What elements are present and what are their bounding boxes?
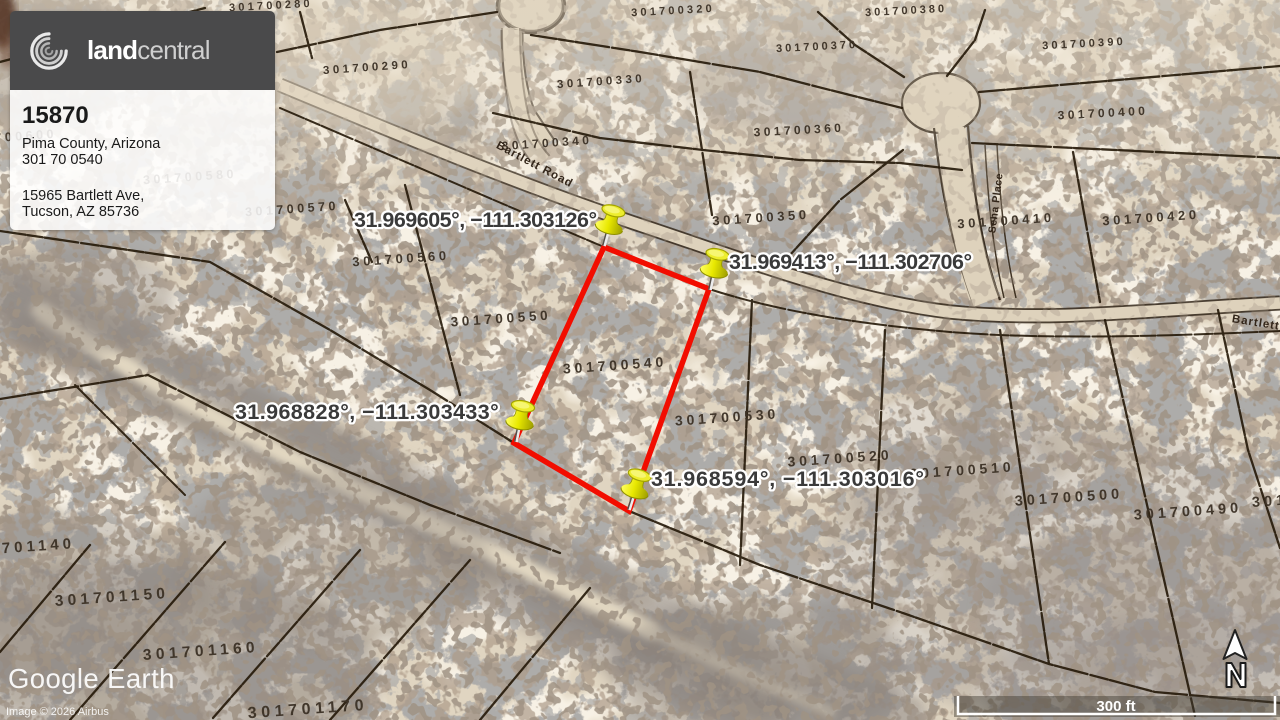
svg-text:Image © 2026 Airbus: Image © 2026 Airbus — [6, 706, 109, 718]
svg-text:300 ft: 300 ft — [1096, 698, 1135, 715]
svg-text:3017: 3017 — [1251, 492, 1280, 511]
svg-text:31.969605°, −111.303126°: 31.969605°, −111.303126° — [354, 208, 597, 232]
svg-text:Google Earth: Google Earth — [8, 663, 175, 694]
svg-text:31.968828°, −111.303433°: 31.968828°, −111.303433° — [235, 400, 499, 424]
svg-text:31.969413°, −111.302706°: 31.969413°, −111.302706° — [729, 250, 972, 274]
svg-text:31.968594°, −111.303016°: 31.968594°, −111.303016° — [651, 467, 925, 491]
